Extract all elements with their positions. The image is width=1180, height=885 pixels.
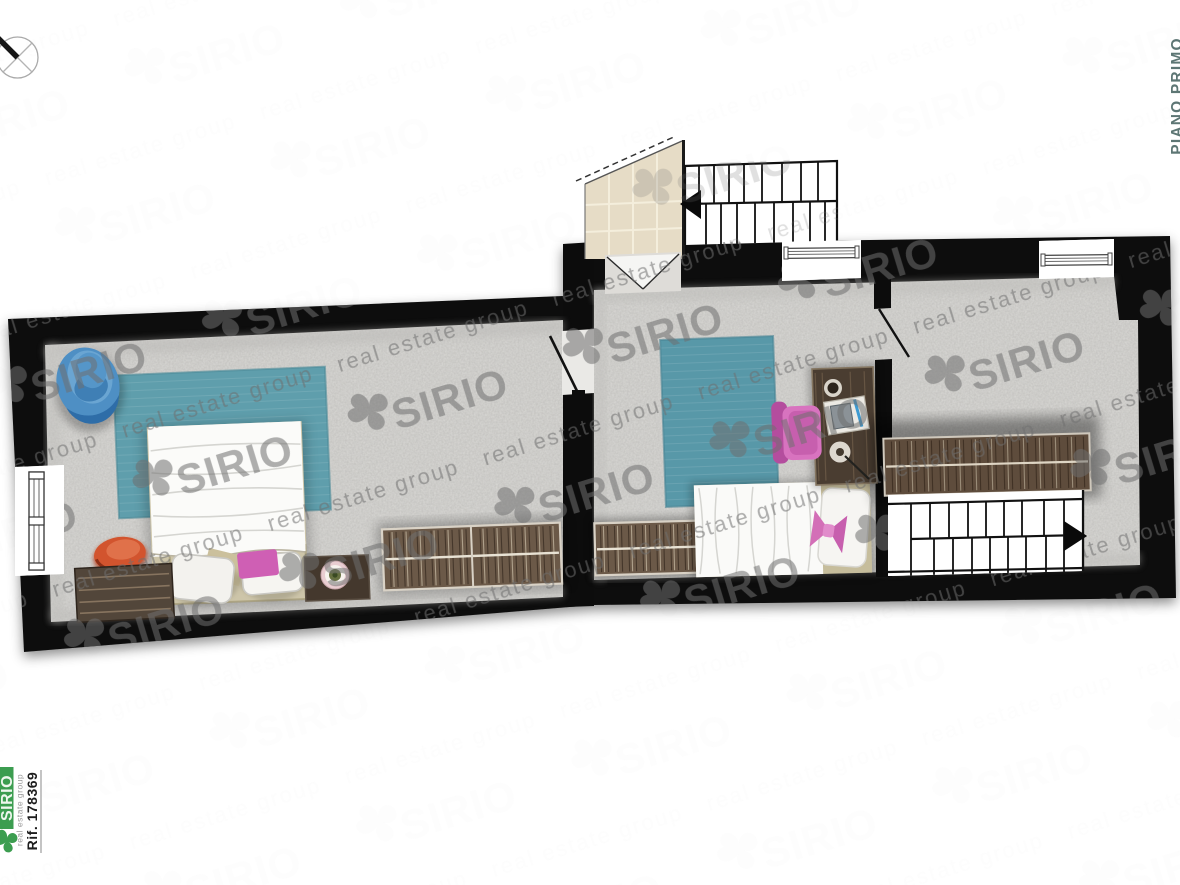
svg-text:real estate group: real estate group — [15, 774, 25, 846]
svg-text:PIANO PRIMO: PIANO PRIMO — [1169, 37, 1180, 154]
svg-text:Rif. 178369: Rif. 178369 — [24, 772, 40, 851]
